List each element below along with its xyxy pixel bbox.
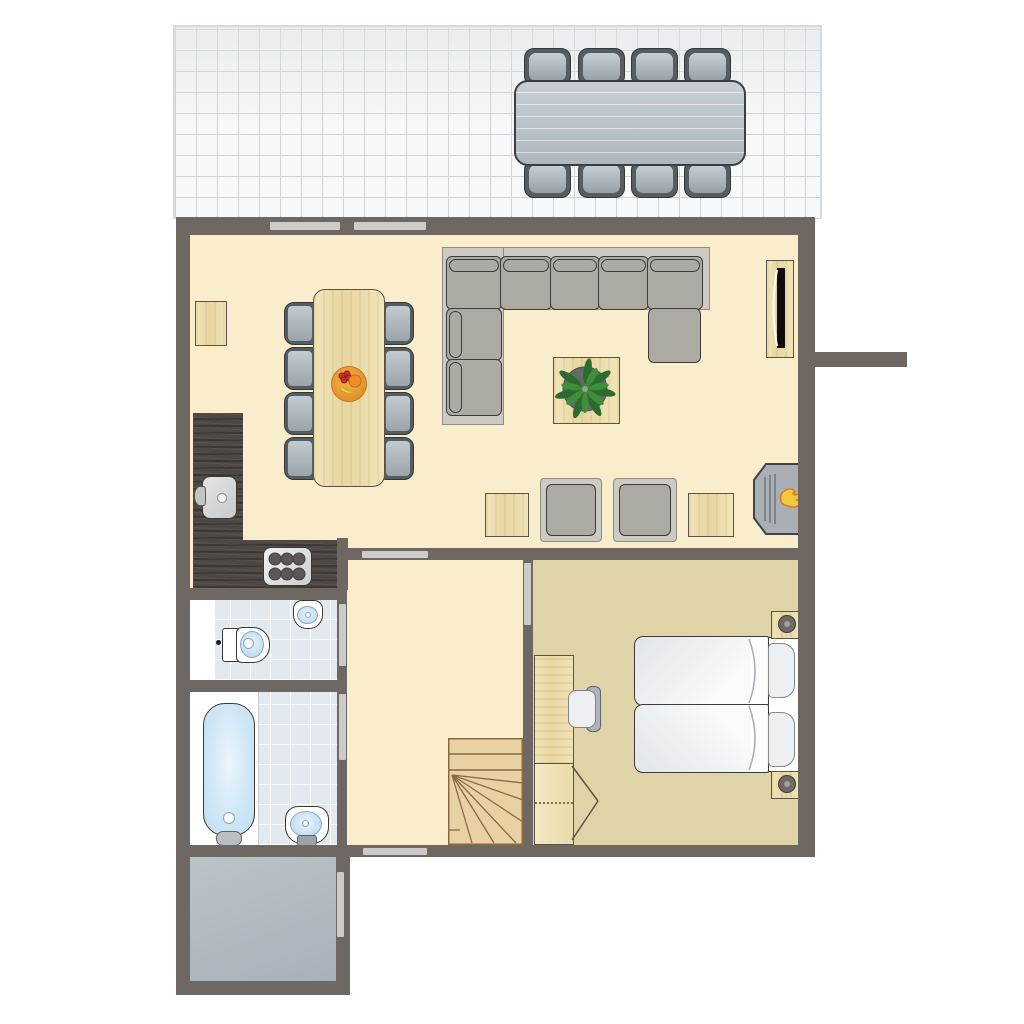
dining-chair-seat [386, 441, 410, 476]
toilet-drain [243, 638, 254, 649]
bathroom-door [339, 694, 346, 760]
sofa-backrest [449, 259, 499, 272]
dining-chair-seat [288, 396, 312, 431]
dining-chair-seat [288, 306, 312, 341]
outdoor-chair-seat [636, 165, 673, 193]
outdoor-chair-seat [583, 53, 620, 81]
mattress [634, 704, 769, 773]
wall-east [798, 217, 815, 857]
outdoor-chair-seat [636, 53, 673, 81]
staircase [448, 738, 523, 845]
sofa-cushion [446, 256, 502, 310]
wall-porch-south [176, 981, 350, 995]
sofa-cushion [598, 256, 649, 310]
sofa-cushion [550, 256, 600, 310]
wardrobe [534, 763, 574, 845]
porch-door [337, 872, 344, 937]
wall-toilet-bath [176, 680, 347, 692]
wall-toilet-north [176, 588, 347, 600]
bathtub-drain [223, 812, 235, 824]
armchair [540, 478, 602, 542]
potted-plant [554, 358, 616, 420]
sofa-armrest [449, 311, 462, 358]
sofa-cushion [647, 256, 703, 310]
dining-chair-seat [386, 396, 410, 431]
floor-plan [0, 0, 1024, 1024]
coffee-table [553, 357, 620, 424]
dining-chair [284, 437, 316, 480]
outdoor-chair-seat [583, 165, 620, 193]
toilet-flush-button [216, 640, 221, 645]
outdoor-chair-seat [689, 53, 726, 81]
terrace [173, 25, 822, 219]
outdoor-chair-seat [529, 165, 566, 193]
sink-faucet [194, 486, 206, 506]
bathtub-faucet [216, 831, 242, 846]
armchair [613, 478, 677, 542]
dining-chair [382, 302, 414, 345]
lamp-center [784, 621, 790, 627]
sofa-chaise [648, 308, 701, 363]
armchair-cushion [619, 484, 671, 536]
dining-chair [382, 347, 414, 390]
mattress [634, 636, 769, 706]
toilet-room-shelf [190, 600, 215, 680]
stove-burners [264, 548, 311, 585]
terrace-door [270, 222, 340, 230]
armchair-cushion [546, 484, 596, 536]
dining-chair-seat [288, 351, 312, 386]
lamp-center [784, 781, 790, 787]
washbasin-drain [302, 820, 309, 827]
washbasin [293, 600, 323, 629]
outdoor-chair-seat [529, 53, 566, 81]
sofa-backrest [601, 259, 646, 272]
hall-door [362, 551, 428, 558]
dining-chair-seat [386, 306, 410, 341]
fruit-bowl-fruits [332, 367, 366, 401]
terrace-door [354, 222, 426, 230]
wall-exterior-stub [815, 352, 907, 367]
desk-chair [568, 690, 596, 728]
wall-south [176, 845, 812, 857]
dining-chair [284, 302, 316, 345]
stove-cooktop [263, 547, 312, 586]
side-table [688, 493, 734, 537]
fruit-bowl [331, 366, 367, 402]
dining-chair [382, 437, 414, 480]
fireplace-stove [753, 463, 802, 535]
dining-table [313, 289, 385, 487]
tv-board [766, 260, 794, 358]
lamp-icon [778, 775, 796, 793]
outdoor-chair-seat [689, 165, 726, 193]
sofa-cushion [446, 359, 502, 416]
sofa-backrest [553, 259, 597, 272]
sofa-backrest [650, 259, 700, 272]
dining-chair [284, 347, 316, 390]
kitchen-sink [202, 476, 237, 519]
washbasin-drain [305, 612, 311, 618]
bedroom-door [524, 563, 531, 625]
bathtub [203, 703, 255, 836]
wall-kitchen-stub [337, 538, 348, 590]
porch-floor [190, 857, 336, 981]
sofa-cushion [446, 308, 502, 361]
wardrobe-rail [535, 802, 573, 804]
wardrobe-door-swing [570, 763, 602, 843]
lamp-icon [778, 615, 796, 633]
toilet-door [339, 604, 346, 666]
dining-chair [284, 392, 316, 435]
toilet-bowl [236, 627, 270, 663]
pillow [768, 712, 795, 767]
dining-chair-seat [386, 351, 410, 386]
dining-chair [382, 392, 414, 435]
outdoor-dining-table [514, 80, 746, 166]
wall-west [176, 217, 190, 995]
sink-drain [217, 493, 227, 503]
pillow [768, 643, 795, 698]
hall-window [363, 848, 427, 855]
mattress-fold [635, 637, 768, 705]
sofa-armrest [449, 362, 462, 413]
sofa-backrest [503, 259, 549, 272]
dining-chair-seat [288, 441, 312, 476]
sofa-cushion [500, 256, 552, 310]
mattress-fold [635, 705, 768, 772]
wall-side-table [195, 301, 227, 346]
tv-screen-glare [769, 268, 779, 348]
side-table [485, 493, 529, 537]
